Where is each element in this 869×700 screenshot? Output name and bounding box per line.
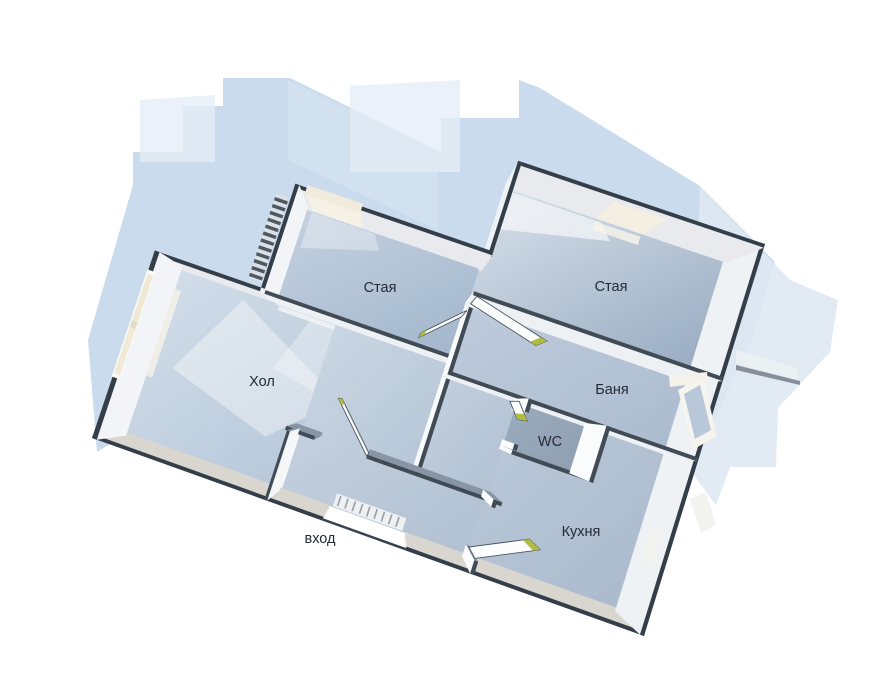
svg-text:Баня: Баня: [595, 382, 628, 398]
svg-text:Кухня: Кухня: [562, 524, 601, 540]
svg-text:вход: вход: [305, 531, 337, 547]
svg-text:Стая: Стая: [595, 279, 628, 295]
svg-text:Стая: Стая: [364, 280, 397, 296]
svg-text:WC: WC: [538, 434, 562, 450]
svg-text:Хол: Хол: [249, 374, 275, 390]
